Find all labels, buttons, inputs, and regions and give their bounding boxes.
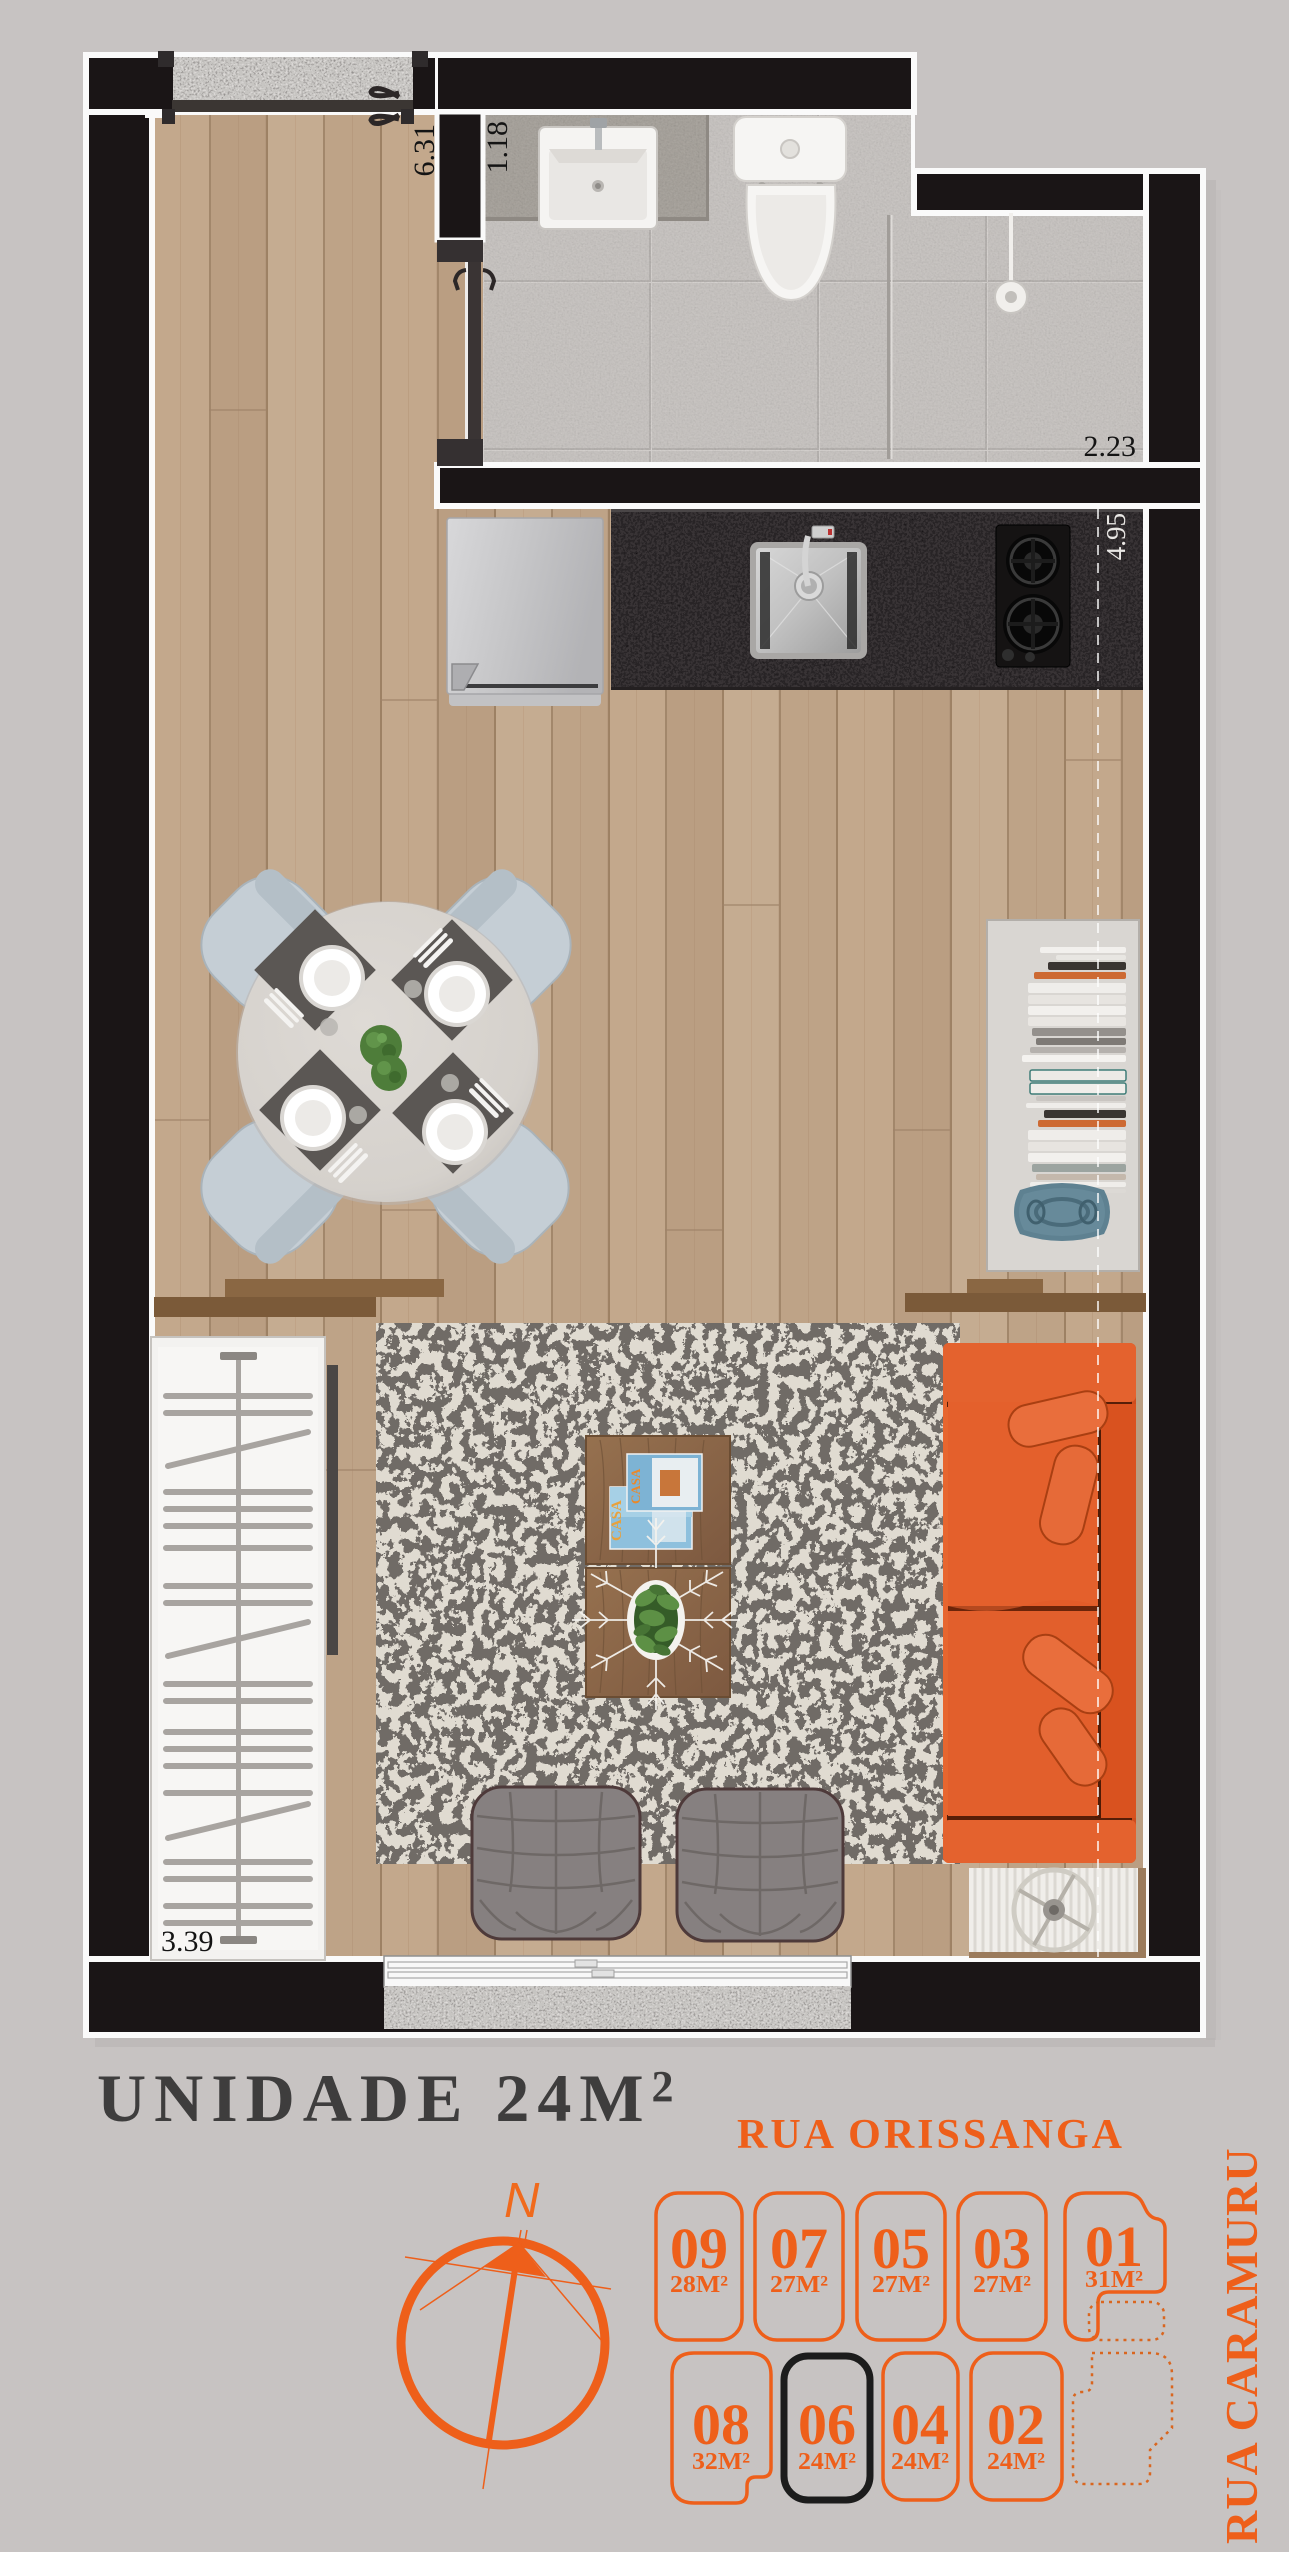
svg-text:28M²: 28M² (670, 2272, 728, 2298)
svg-text:24M²: 24M² (798, 2449, 856, 2475)
svg-text:04: 04 (891, 2392, 949, 2457)
svg-text:CASA: CASA (609, 1500, 625, 1541)
svg-text:24M²: 24M² (987, 2449, 1045, 2475)
svg-text:RUA CARAMURU: RUA CARAMURU (1216, 2147, 1267, 2544)
svg-text:6.31: 6.31 (408, 124, 441, 177)
svg-text:RUA ORISSANGA: RUA ORISSANGA (737, 2112, 1125, 2158)
svg-text:08: 08 (692, 2392, 750, 2457)
svg-text:27M²: 27M² (770, 2272, 828, 2298)
svg-text:24M²: 24M² (891, 2449, 949, 2475)
svg-text:27M²: 27M² (872, 2272, 930, 2298)
svg-text:1.18: 1.18 (481, 121, 514, 174)
svg-text:N: N (504, 2174, 540, 2228)
svg-text:32M²: 32M² (692, 2449, 750, 2475)
svg-text:4.95: 4.95 (1101, 513, 1131, 560)
svg-text:CASA: CASA (628, 1468, 643, 1504)
svg-text:27M²: 27M² (973, 2272, 1031, 2298)
svg-text:UNIDADE 24M2: UNIDADE 24M2 (97, 2060, 682, 2136)
svg-text:2.23: 2.23 (1084, 430, 1137, 463)
svg-text:3.39: 3.39 (161, 1925, 214, 1958)
svg-text:02: 02 (987, 2392, 1045, 2457)
svg-text:31M²: 31M² (1085, 2267, 1143, 2293)
svg-text:06: 06 (798, 2392, 856, 2457)
